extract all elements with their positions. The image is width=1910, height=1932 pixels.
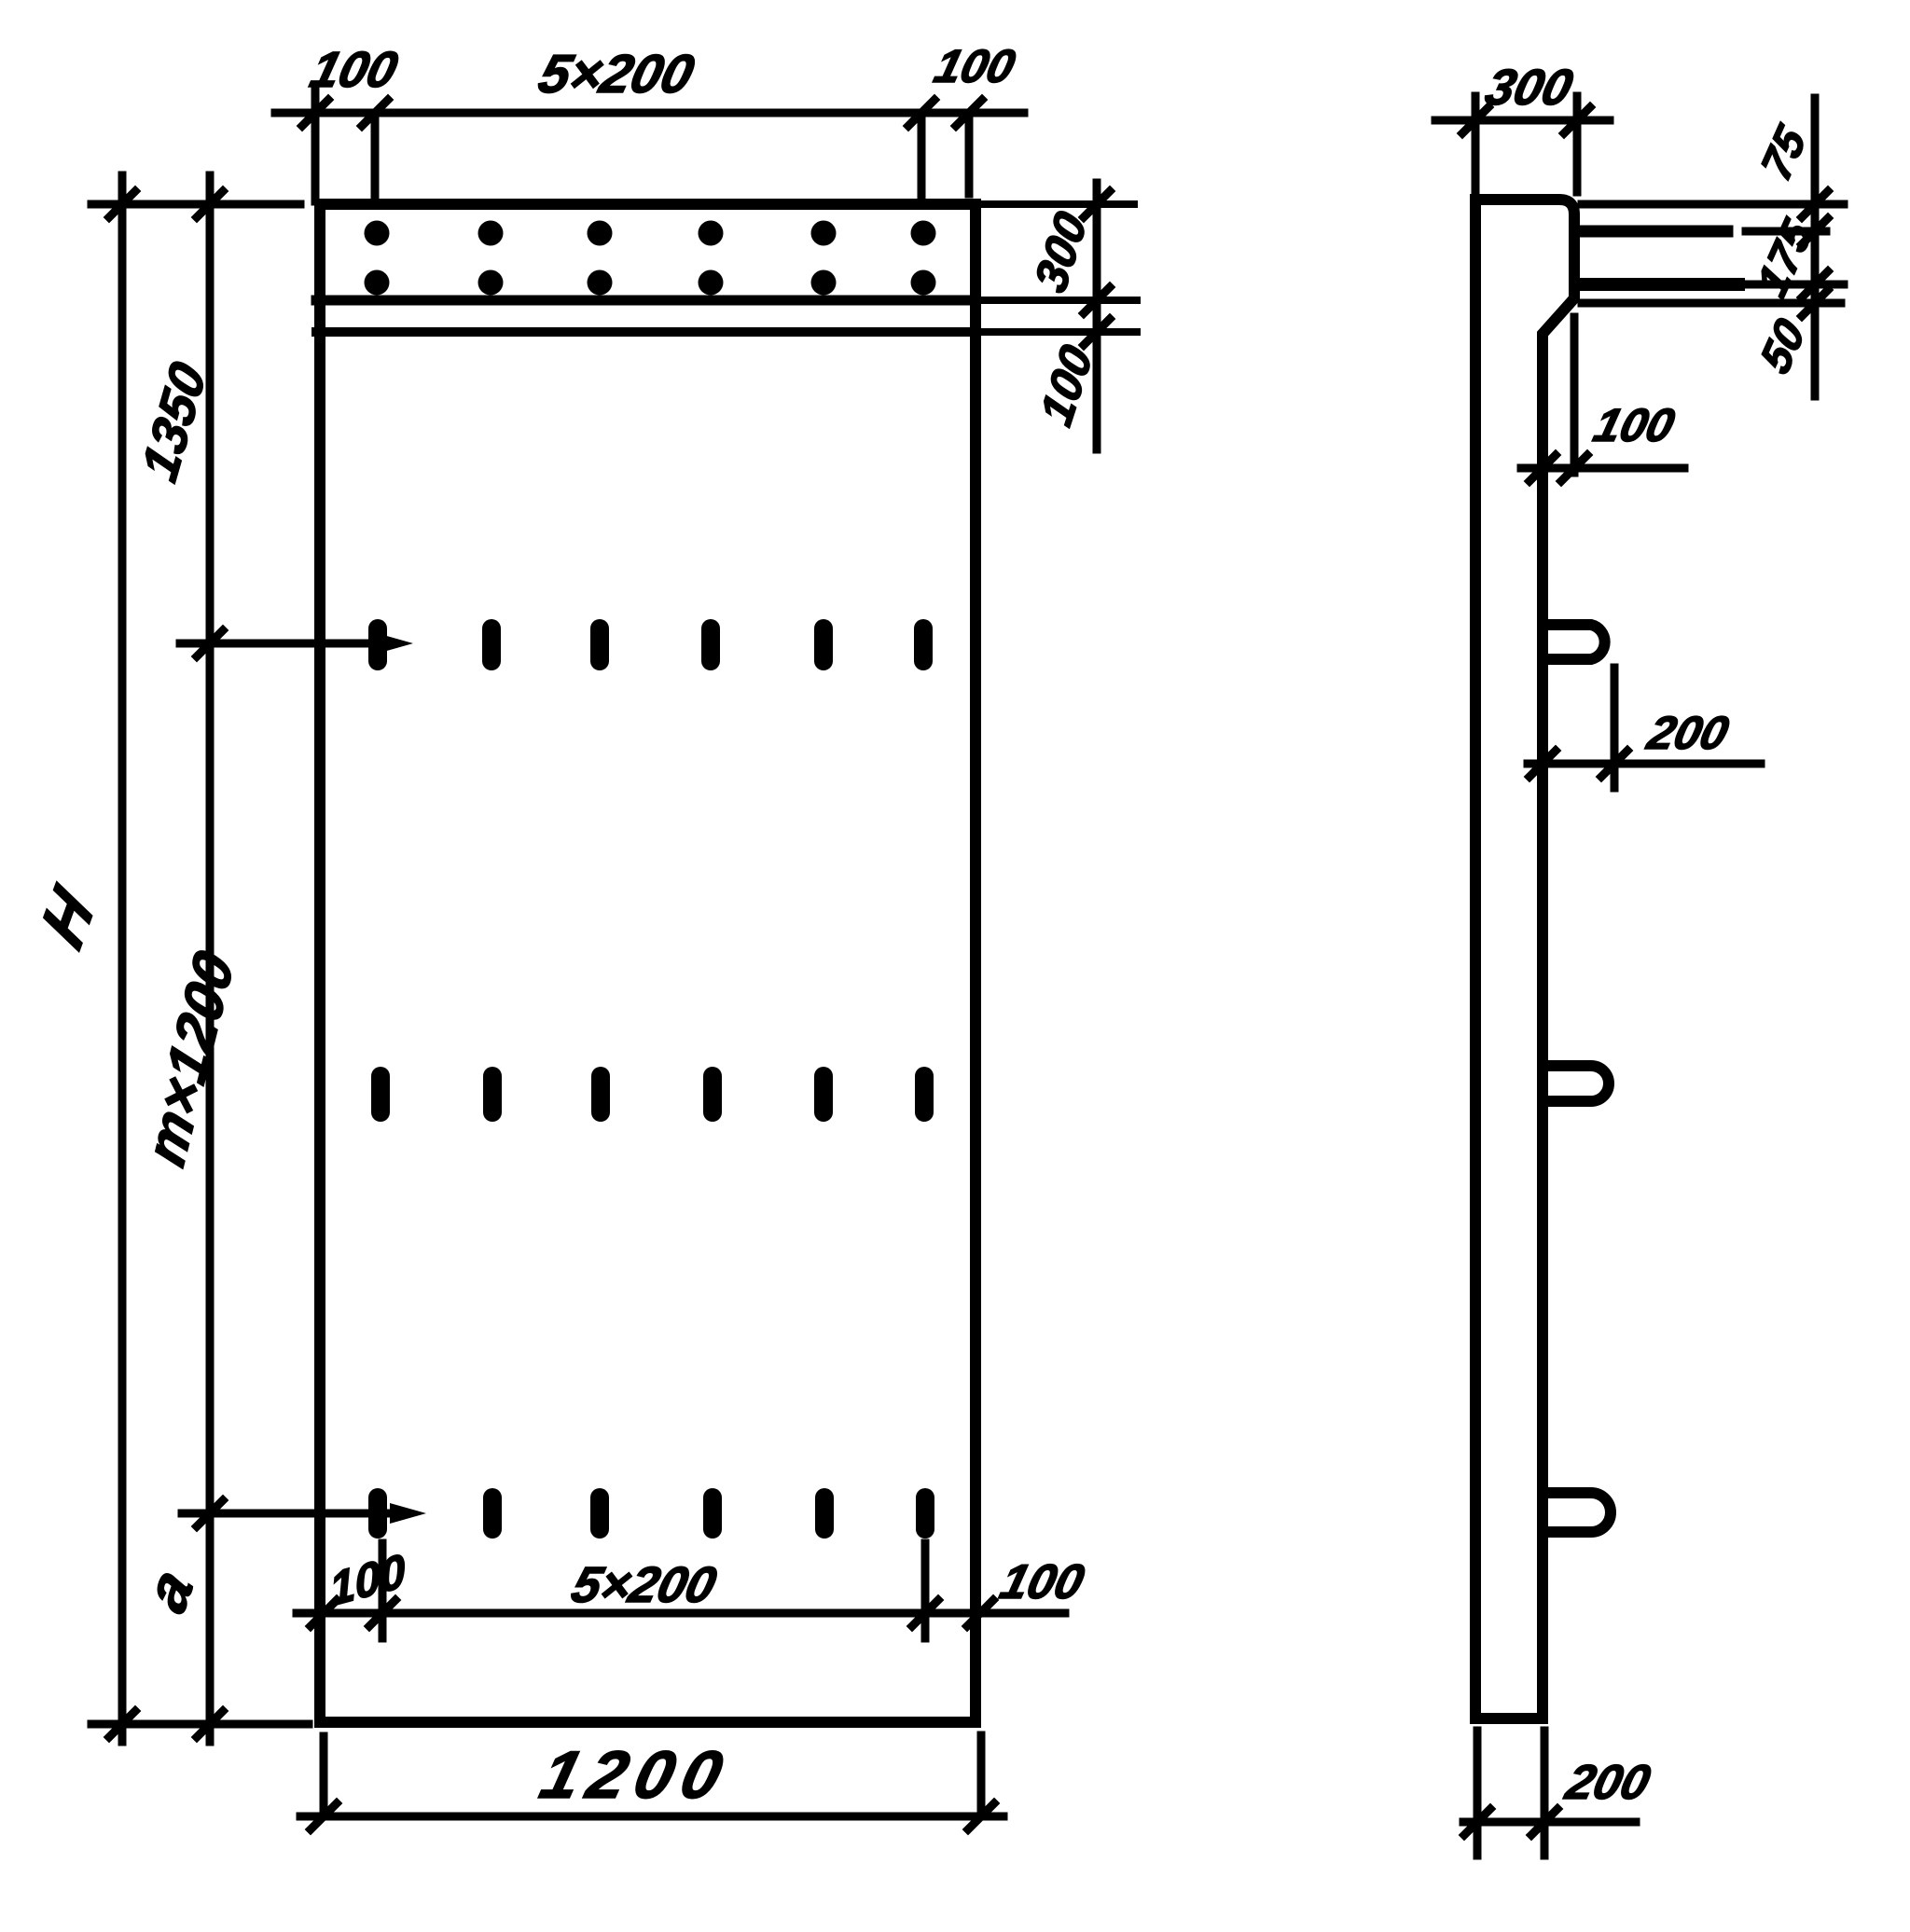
svg-text:100: 100 <box>930 40 1020 92</box>
svg-text:100: 100 <box>995 1555 1089 1609</box>
svg-text:200: 200 <box>1560 1756 1655 1810</box>
svg-text:1200: 1200 <box>533 1738 739 1813</box>
svg-text:100: 100 <box>305 41 403 98</box>
svg-text:5×200: 5×200 <box>533 45 699 104</box>
svg-text:5×200: 5×200 <box>566 1556 722 1613</box>
svg-text:300: 300 <box>1480 59 1578 116</box>
svg-text:100: 100 <box>1589 399 1680 451</box>
svg-text:200: 200 <box>1642 707 1734 759</box>
